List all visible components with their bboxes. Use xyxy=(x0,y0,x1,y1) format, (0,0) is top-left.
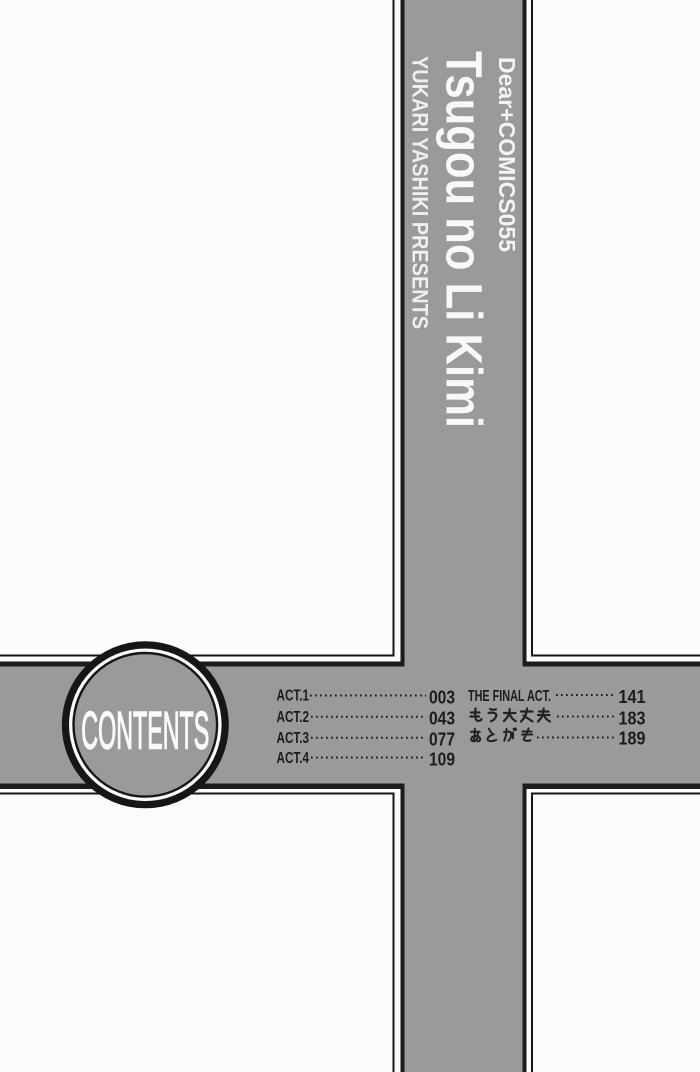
svg-text:ACT.3: ACT.3 xyxy=(277,730,310,747)
svg-text:077: 077 xyxy=(429,729,455,749)
svg-text:183: 183 xyxy=(619,709,646,729)
svg-text:ACT.2: ACT.2 xyxy=(277,709,310,726)
svg-text:003: 003 xyxy=(429,688,455,708)
svg-text:Tsugou no Li Kimi: Tsugou no Li Kimi xyxy=(436,51,493,428)
svg-text:Dear+COMICS055: Dear+COMICS055 xyxy=(494,57,520,252)
svg-text:CONTENTS: CONTENTS xyxy=(81,702,209,761)
svg-text:YUKARI YASHIKI PRESENTS: YUKARI YASHIKI PRESENTS xyxy=(408,56,433,329)
svg-text:ACT.4: ACT.4 xyxy=(277,750,310,767)
svg-text:109: 109 xyxy=(429,750,455,770)
svg-text:THE FINAL ACT.: THE FINAL ACT. xyxy=(468,688,551,705)
svg-text:189: 189 xyxy=(619,729,646,749)
svg-text:043: 043 xyxy=(429,709,455,729)
svg-text:ACT.1: ACT.1 xyxy=(277,688,310,705)
svg-text:141: 141 xyxy=(619,687,646,707)
